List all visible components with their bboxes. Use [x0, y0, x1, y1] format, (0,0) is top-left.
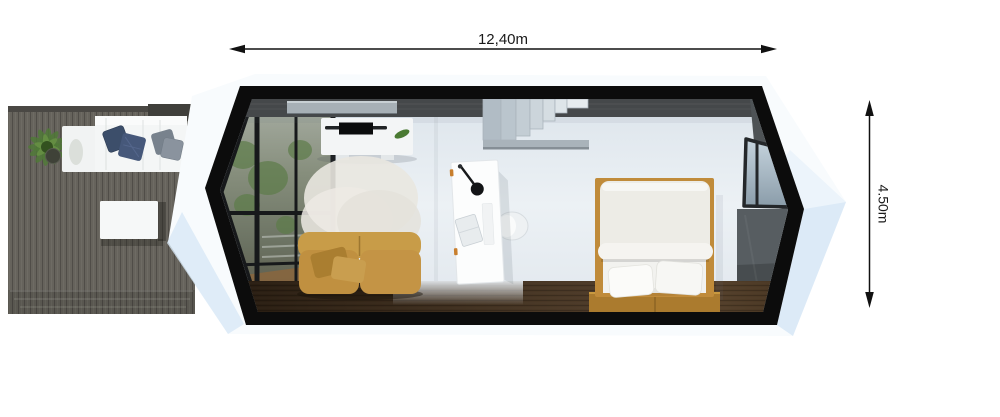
stair-step [483, 99, 501, 140]
coffee-table [100, 201, 166, 246]
arrow-right-icon [761, 45, 777, 53]
indoor-sofa [297, 232, 423, 300]
house [167, 74, 846, 336]
deck-steps [8, 290, 195, 314]
stair-step [567, 99, 588, 108]
stair-step [543, 99, 555, 121]
terrace-deck [8, 104, 202, 314]
floorplan-svg: 12,40m 4.50m [0, 0, 1000, 417]
stair-landing [483, 140, 589, 147]
width-dimension-label: 12,40m [478, 31, 528, 48]
stair-step [555, 99, 567, 113]
arrow-left-icon [229, 45, 245, 53]
bed-pillow-left [608, 264, 654, 298]
arrow-down-icon [865, 292, 874, 308]
desk-hinge [454, 248, 458, 255]
height-dimension: 4.50m [865, 100, 891, 308]
tv [339, 123, 373, 135]
stair-step [501, 99, 516, 140]
floorplan-canvas: 12,40m 4.50m [0, 0, 1000, 417]
duvet-fold [598, 243, 713, 260]
tv-shelf [287, 101, 397, 114]
height-dimension-label: 4.50m [876, 185, 892, 224]
sofa-seat-right [360, 250, 421, 294]
stair-step [516, 99, 530, 136]
bed-pillow-right [655, 260, 703, 295]
bed [589, 178, 723, 314]
desk-hinge [450, 169, 454, 176]
desk [449, 159, 513, 287]
coffee-table-top [100, 201, 158, 239]
desk-papers [482, 203, 494, 244]
width-dimension: 12,40m [229, 31, 777, 53]
plant-pot [46, 149, 61, 164]
arrow-up-icon [865, 100, 874, 116]
gray-pillow-front [160, 137, 184, 161]
house-interior [215, 95, 795, 315]
stair-step [530, 99, 543, 129]
